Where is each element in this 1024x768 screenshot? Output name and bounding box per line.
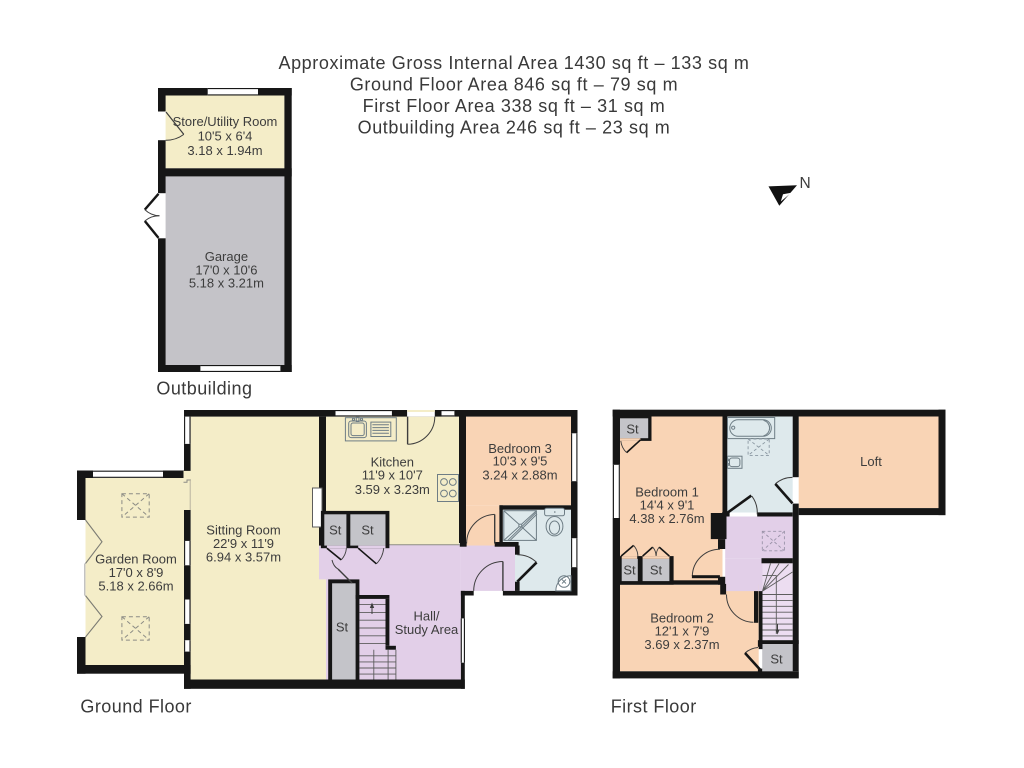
svg-text:St: St (361, 522, 374, 537)
svg-text:5.18 x 2.66m: 5.18 x 2.66m (98, 578, 173, 593)
svg-text:St: St (336, 619, 349, 634)
svg-text:5.18 x 3.21m: 5.18 x 3.21m (189, 276, 264, 291)
svg-text:St: St (770, 652, 783, 667)
svg-text:St: St (626, 422, 639, 437)
svg-text:Approximate Gross Internal Are: Approximate Gross Internal Area 1430 sq … (278, 53, 749, 73)
svg-text:St: St (650, 562, 663, 577)
svg-text:11'9 x 10'7: 11'9 x 10'7 (362, 468, 423, 483)
svg-text:3.24 x 2.88m: 3.24 x 2.88m (482, 468, 557, 483)
svg-text:Store/Utility Room: Store/Utility Room (173, 114, 278, 129)
svg-text:St: St (623, 562, 636, 577)
svg-text:First Floor Area 338 sq ft – 3: First Floor Area 338 sq ft – 31 sq m (363, 96, 666, 116)
svg-text:Study Area: Study Area (395, 622, 459, 637)
svg-text:Outbuilding: Outbuilding (156, 378, 252, 398)
svg-text:10'3 x 9'5: 10'3 x 9'5 (493, 454, 548, 469)
svg-text:3.69 x 2.37m: 3.69 x 2.37m (644, 637, 719, 652)
svg-text:Outbuilding Area 246 sq ft – 2: Outbuilding Area 246 sq ft – 23 sq m (358, 117, 671, 137)
svg-text:6.94 x 3.57m: 6.94 x 3.57m (206, 550, 281, 565)
svg-text:St: St (329, 522, 342, 537)
svg-text:Loft: Loft (860, 454, 882, 469)
svg-text:3.18 x 1.94m: 3.18 x 1.94m (187, 143, 262, 158)
svg-text:3.59 x 3.23m: 3.59 x 3.23m (355, 482, 430, 497)
svg-text:4.38 x 2.76m: 4.38 x 2.76m (629, 511, 704, 526)
svg-text:Ground Floor: Ground Floor (80, 697, 191, 717)
svg-text:N: N (800, 175, 811, 192)
svg-text:First Floor: First Floor (611, 697, 697, 717)
svg-text:Ground Floor Area 846 sq ft –: Ground Floor Area 846 sq ft – 79 sq m (350, 74, 678, 94)
svg-text:10'5 x 6'4: 10'5 x 6'4 (198, 129, 253, 144)
